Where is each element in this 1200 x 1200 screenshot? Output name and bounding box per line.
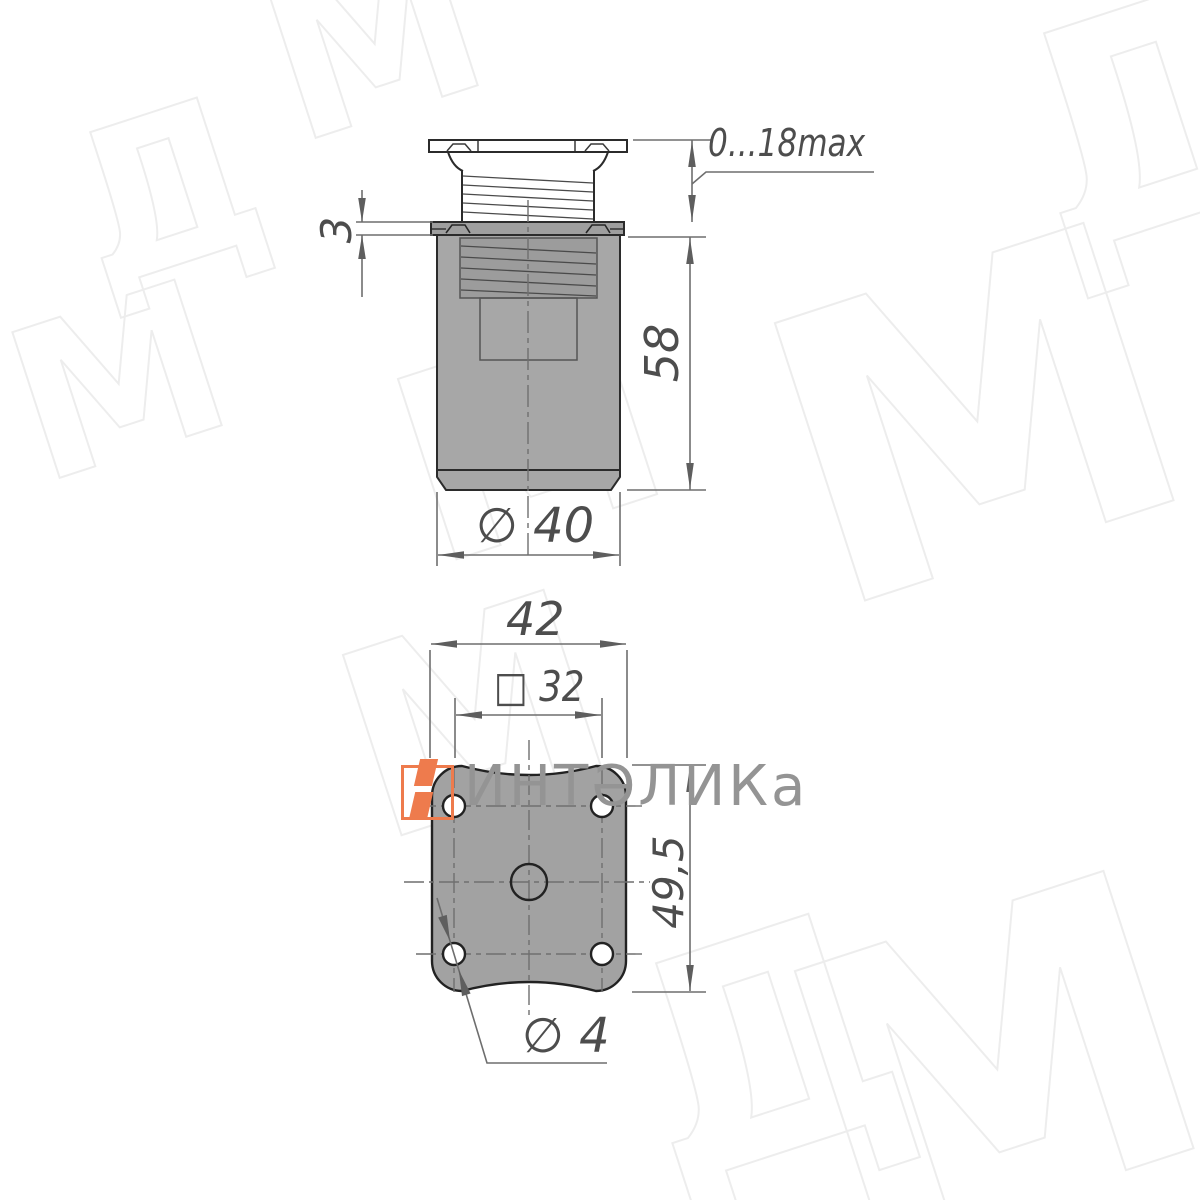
- dim-label-body-diameter: ∅ 40: [476, 502, 594, 550]
- dim-label-screw-hole-diameter: ∅ 4: [522, 1012, 610, 1060]
- drawing-page: М Д М М М М Д Д М: [0, 0, 1200, 1200]
- top-plate: [429, 140, 627, 152]
- front-view: [429, 140, 627, 556]
- screw-hole: [591, 943, 613, 965]
- dim-label-plate-depth: 49,5: [639, 827, 699, 937]
- dim-label-adjustment-range: 0...18max: [708, 124, 865, 162]
- dim-plate-thickness: [356, 190, 433, 297]
- dim-label-hole-spacing: □ 32: [494, 666, 585, 708]
- dim-label-plate-thickness: 3: [312, 205, 362, 255]
- intelika-logo-text: ИНТӘЛИКа: [464, 756, 808, 818]
- dim-label-body-height: 58: [632, 321, 692, 385]
- dim-label-plate-width: 42: [506, 596, 565, 642]
